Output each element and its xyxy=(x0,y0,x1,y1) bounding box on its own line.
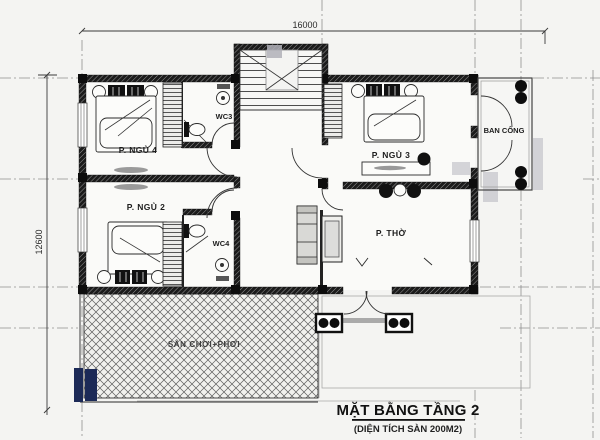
sink-symbol xyxy=(216,259,230,282)
wardrobe-symbol xyxy=(163,83,182,147)
sofa-symbol xyxy=(297,206,317,264)
dimension-height-label: 12600 xyxy=(34,229,44,254)
toilet-symbol xyxy=(184,224,205,238)
window-left-lower xyxy=(78,208,87,252)
window-right xyxy=(470,220,479,262)
wardrobe-symbol xyxy=(163,222,182,286)
armchair-symbol xyxy=(379,184,421,198)
room-label-worship: P. THỜ xyxy=(376,227,407,238)
plant-symbol xyxy=(152,271,165,284)
staircase-symbol xyxy=(240,45,322,110)
bed-symbol xyxy=(96,96,156,152)
room-label-playground: SÂN CHƠI+PHƠI xyxy=(168,340,240,349)
drawing-subtitle: (DIỆN TÍCH SÀN 200M2) xyxy=(354,423,462,435)
room-label-balcony: BAN CÔNG xyxy=(484,126,525,135)
bed-symbol xyxy=(364,96,424,142)
bedroom2-furniture xyxy=(98,222,183,286)
dresser-symbol xyxy=(114,167,148,173)
dimension-width-label: 16000 xyxy=(292,20,317,30)
porch-sill xyxy=(342,318,386,323)
altar-cabinet-symbol xyxy=(322,216,342,262)
plant-symbol xyxy=(98,271,111,284)
drawing-title: MẶT BẰNG TẦNG 2 xyxy=(337,401,480,419)
room-label-wc3: WC3 xyxy=(216,112,233,121)
porch-pedestal xyxy=(386,314,412,332)
chair-symbol xyxy=(418,153,431,166)
plant-symbol xyxy=(352,85,365,98)
room-label-wc4: WC4 xyxy=(213,239,230,248)
floor-plan-drawing: 16000 12600 xyxy=(0,0,600,440)
dresser-symbol xyxy=(114,184,148,190)
floor-plan-page: 16000 12600 xyxy=(0,0,600,440)
title-block: MẶT BẰNG TẦNG 2 (DIỆN TÍCH SÀN 200M2) xyxy=(337,401,480,435)
room-label-bedroom3: P. NGỦ 3 xyxy=(372,149,410,160)
highlight-marker xyxy=(74,368,97,402)
bed-symbol xyxy=(108,222,168,274)
toilet-symbol xyxy=(184,122,205,137)
window-left-upper xyxy=(78,103,87,147)
sink-symbol xyxy=(217,84,231,105)
wardrobe-symbol xyxy=(324,84,342,138)
porch-pedestal xyxy=(316,314,342,332)
room-label-bedroom2: P. NGỦ 2 xyxy=(127,201,165,212)
room-label-bedroom4: P. NGỦ 4 xyxy=(119,144,157,155)
title-underline xyxy=(352,419,465,421)
